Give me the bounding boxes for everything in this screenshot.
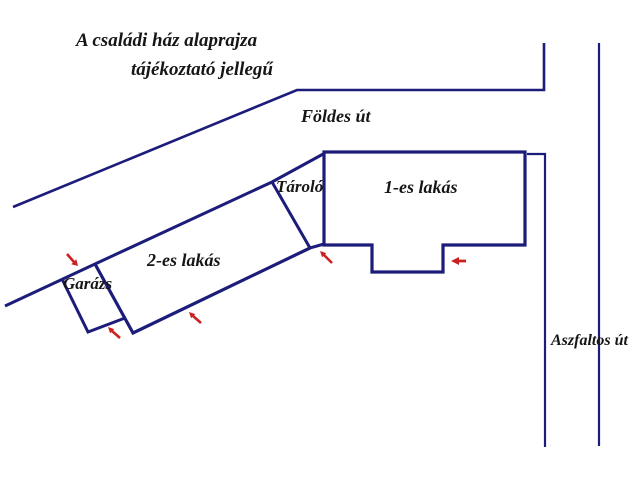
garage-bottom-entrance-arrow [108, 327, 120, 338]
plan-title-line2: tájékoztató jellegű [131, 60, 273, 81]
east-road-left-edge-line [527, 154, 545, 447]
unit1-outline [324, 152, 525, 272]
plan-title-line1: A családi ház alaprajza [76, 31, 257, 52]
floor-plan-canvas: A családi ház alaprajza tájékoztató jell… [0, 0, 640, 480]
unit1-label: 1-es lakás [384, 178, 458, 198]
unit1-left-entrance-arrow [320, 251, 332, 263]
unit2-entrance-arrow [189, 312, 201, 323]
unit1-porch-entrance-arrow [451, 257, 466, 265]
garage-top-entrance-arrow [67, 254, 78, 266]
unit2-label: 2-es lakás [147, 251, 221, 271]
storage-label: Tároló [276, 178, 323, 197]
north-road-label: Földes út [301, 107, 371, 127]
garage-label: Garázs [63, 275, 112, 294]
property-boundary-line [5, 153, 325, 306]
site-plan-svg [0, 0, 640, 480]
east-road-label: Aszfaltos út [551, 332, 628, 350]
